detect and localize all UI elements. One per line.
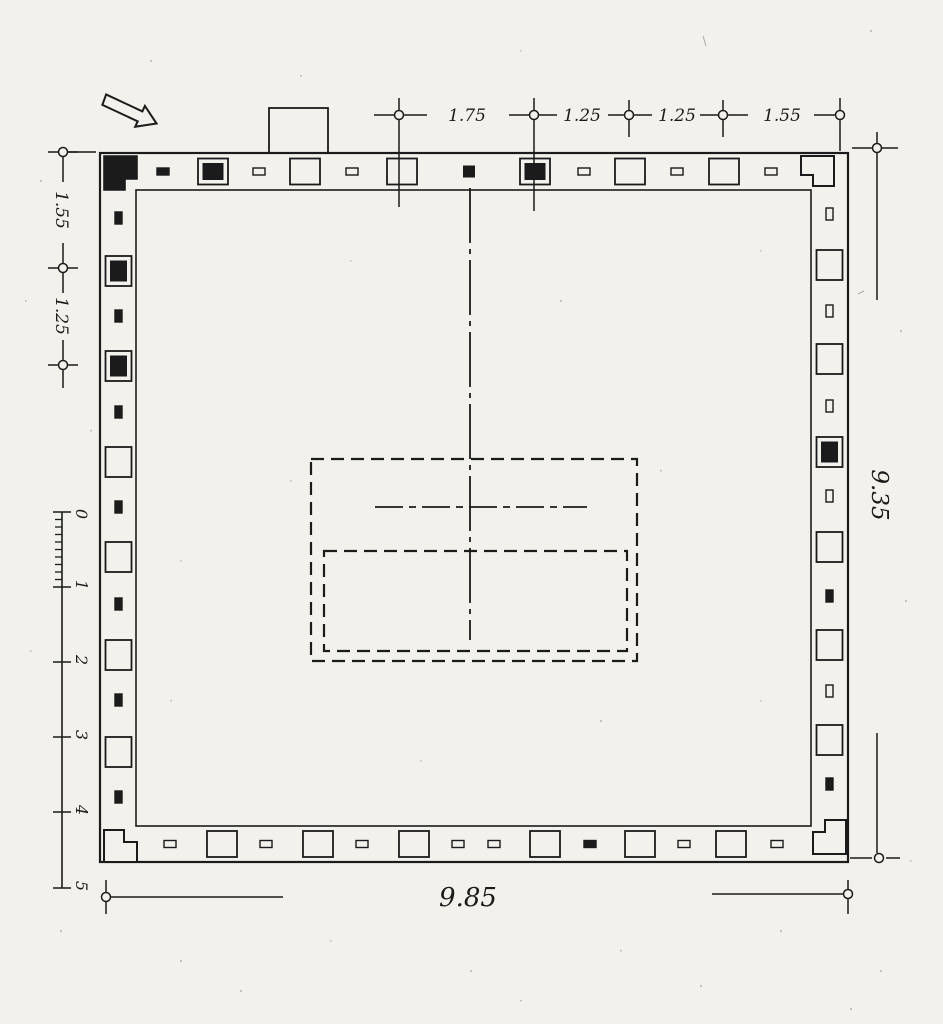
scale-fine-ticks: [55, 520, 62, 580]
wall-column: [106, 640, 132, 670]
scale-num-4: 4: [72, 804, 91, 815]
wall-dash: [115, 501, 122, 513]
dimension-chain-left: 1.55 1.25: [48, 148, 96, 389]
wall-dash: [771, 841, 783, 848]
scale-num-0: 0: [72, 509, 91, 519]
wall-dash: [115, 212, 122, 224]
north-arrow-icon: [99, 89, 161, 134]
wall-dash: [826, 778, 833, 790]
wall-dash: [678, 841, 690, 848]
wall-column: [530, 831, 560, 857]
wall-dash: [826, 490, 833, 502]
wall-left-columns: [106, 212, 132, 803]
dim-label-left-1: 1.55: [51, 191, 71, 229]
wall-dash: [115, 694, 122, 706]
wall-column: [709, 159, 739, 185]
corner-block-top-right: [801, 156, 834, 186]
corner-block-bottom-left: [104, 830, 137, 862]
wall-dash: [115, 406, 122, 418]
scale-num-5: 5: [72, 881, 91, 891]
wall-column: [716, 831, 746, 857]
wall-column: [303, 831, 333, 857]
dimension-bottom: 9.85: [102, 880, 853, 914]
dim-label-top-1: 1.75: [448, 106, 486, 126]
wall-dash: [826, 305, 833, 317]
wall-column-fill: [110, 261, 127, 282]
wall-column-fill: [110, 356, 127, 377]
wall-column: [817, 250, 843, 280]
corner-block-bottom-right: [813, 820, 846, 854]
dim-label-left-2: 1.25: [51, 297, 71, 335]
wall-dash: [346, 168, 358, 175]
wall-bottom-columns: [164, 831, 783, 857]
wall-dash: [584, 841, 596, 848]
wall-column: [625, 831, 655, 857]
dim-label-top-2: 1.25: [563, 106, 601, 126]
wall-column: [106, 447, 132, 477]
wall-dash: [826, 208, 833, 220]
wall-dash: [671, 168, 683, 175]
wall-column: [399, 831, 429, 857]
wall-dash: [826, 685, 833, 697]
wall-dash: [115, 598, 122, 610]
wall-dash: [356, 841, 368, 848]
inner-dashed-rect: [324, 551, 627, 651]
wall-dash: [164, 841, 176, 848]
wall-top-columns: [157, 159, 777, 185]
wall-column-fill: [821, 442, 838, 463]
wall-right-columns: [817, 208, 843, 790]
wall-column-fill: [525, 163, 546, 180]
top-annex: [269, 108, 328, 153]
corner-block-top-left: [104, 156, 137, 190]
wall-column: [817, 630, 843, 660]
wall-column: [817, 344, 843, 374]
outer-dashed-rect: [311, 459, 637, 661]
scale-num-3: 3: [72, 730, 91, 740]
wall-dash: [826, 590, 833, 602]
wall-column: [817, 725, 843, 755]
wall-column: [106, 737, 132, 767]
dimension-right: 9.35: [850, 132, 900, 863]
floor-plan-sheet: 1.75 1.25 1.25 1.55 1.55 1.25 9.35: [0, 0, 943, 1024]
scale-bar: 0 1 2 3 4 5: [53, 509, 91, 891]
dimension-chain-top: 1.75 1.25 1.25 1.55: [374, 98, 845, 211]
wall-dash: [157, 168, 169, 175]
wall-column: [615, 159, 645, 185]
wall-dash: [826, 400, 833, 412]
wall-dash: [578, 168, 590, 175]
scale-num-2: 2: [72, 654, 91, 665]
wall-dash: [452, 841, 464, 848]
wall-dash: [253, 168, 265, 175]
wall-dash: [488, 841, 500, 848]
inner-wall-line: [136, 190, 811, 826]
wall-dash: [115, 310, 122, 322]
wall-column-fill: [203, 163, 224, 180]
wall-column: [207, 831, 237, 857]
wall-dash: [260, 841, 272, 848]
dim-label-top-4: 1.55: [763, 106, 801, 126]
wall-column: [290, 159, 320, 185]
dim-label-top-3: 1.25: [658, 106, 696, 126]
wall-dash: [765, 168, 777, 175]
scale-num-1: 1: [72, 580, 91, 590]
dim-label-right: 9.35: [866, 469, 892, 520]
wall-center-mark: [463, 166, 475, 178]
wall-dash: [115, 791, 122, 803]
dim-label-bottom: 9.85: [439, 883, 497, 913]
foundation-outline: [311, 188, 637, 661]
wall-column: [817, 532, 843, 562]
wall-column: [106, 542, 132, 572]
wall-column: [387, 159, 417, 185]
